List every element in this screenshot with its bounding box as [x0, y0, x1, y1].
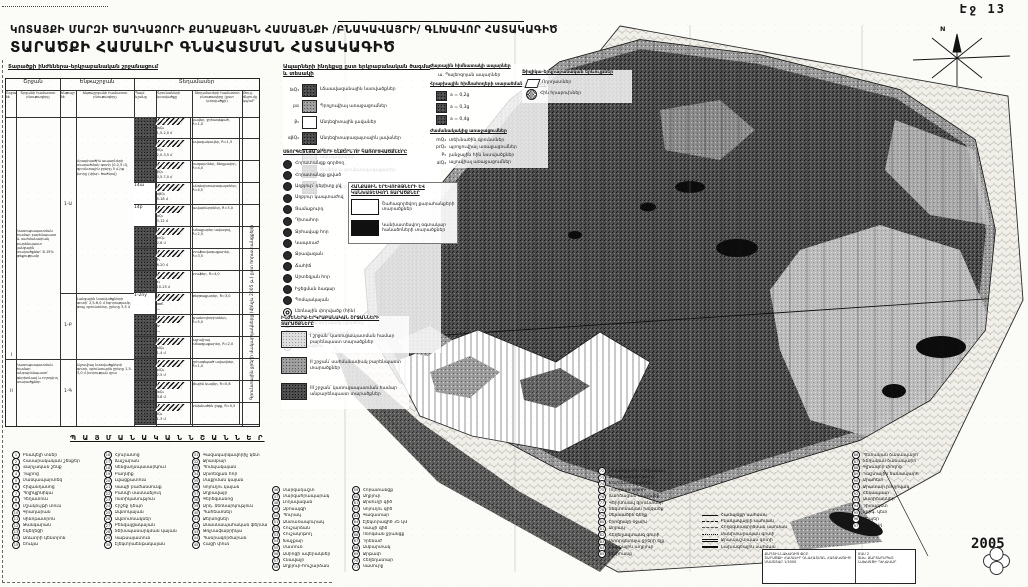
strat-index-cell: P₃ 6-20 մ [156, 249, 191, 270]
signs-col-boundaries: Համայնքի սահմանԲնակավայրի սահմանՀողօգտագ… [702, 512, 802, 550]
phys-item-2: Հին հրաբուխներ [526, 89, 632, 100]
sign-label: Գազատար [363, 513, 390, 518]
modern-title: Ժամանակակից առաջացումներ [430, 129, 548, 135]
strat-swatch-fill [134, 161, 155, 182]
modern-index: mQ₄ [432, 138, 446, 143]
strat-index-cell: tQ₄ 1-3 մ [156, 403, 191, 424]
sign-label: Մարզադաշտ [283, 488, 315, 493]
sign-label: Մաքրման կայան [203, 478, 244, 483]
strat-index: αвЄ [157, 302, 189, 306]
strat-index: tQ₄ [157, 412, 189, 416]
sign-label: Գազակարգավորիչ կետ [203, 453, 260, 458]
rock-swatch [302, 100, 317, 113]
sign-item: 58Աղբյուր-հուշարձան [272, 564, 348, 570]
strat-index: Iv [157, 324, 189, 328]
well-icon [283, 274, 292, 283]
sign-label: Տեկտոնական խզվածք [609, 507, 664, 512]
underground-item: Հորատանցք գործող [283, 160, 441, 169]
strat-swatch-fill [134, 359, 155, 380]
sign-number: 85 [598, 550, 606, 558]
boundary-line-icon [702, 546, 718, 548]
modern-item: prQ₄ պրոլյուվիալ առաջացումներ [432, 145, 548, 151]
map-title-line1: ԿՈՏԱՅՔԻ ՄԱՐԶԻ ԾԱՂԿԱՁՈՐԻ ՔԱՂԱՔԱՅԻՆ ՀԱՄԱՅՆ… [10, 24, 650, 36]
sign-label: Տրիգ. կետ [863, 510, 888, 515]
sign-label: Ճահճացած տարածք [609, 494, 660, 499]
strat-index: αQ₂ [157, 214, 189, 218]
strat-desc: թերթաքարեր, R=3,0 [191, 293, 240, 314]
strat-thickness: 0,5-7,0 մ [157, 175, 189, 179]
strat-index-cell: βQ₃ 0,5-7,0 մ [156, 161, 191, 182]
strat-swatch-fill: 1-2ny [134, 293, 155, 314]
sign-label: Կապի գիծ [363, 526, 388, 531]
region-zone-swatch [281, 357, 307, 374]
strat-desc: ալյուվիալ խճագլաքարեր, R=2,0 [191, 337, 240, 358]
modern-label: ալյուվիալ առաջացումներ [449, 160, 511, 166]
col-group-sections: Տեղամասեր [134, 79, 259, 91]
strat-swatch [134, 139, 156, 160]
sign-number: 97 [852, 522, 860, 530]
phys-label-2: Հին հրաբուխներ [540, 91, 581, 97]
strat-swatch-fill [134, 117, 155, 138]
strat-thickness: 6-20 մ [157, 263, 189, 267]
mineral-label: Շահագործվող քարահանքերի տարածքներ [382, 202, 455, 213]
strat-swatch-fill: 14ա [134, 183, 155, 204]
sign-label: Կաթսայատուն [115, 536, 151, 541]
zoning-table: Շրջան Ենթաշրջան Տեղամասեր Շրջանի № Շրջան… [5, 78, 260, 427]
sign-label: Գերխոնավ գրունտներ [609, 501, 663, 506]
well-icon [283, 217, 292, 226]
sign-label: Աղբյուր [363, 494, 381, 499]
strat-swatch [134, 359, 156, 380]
strat-index: βQ₃ [157, 170, 189, 174]
sign-label: Հենապատ [863, 491, 889, 496]
boundary-line-icon [702, 527, 718, 528]
strat-row: P₃ 6-20 մ տուֆավազաքարեր, R=3,5 [134, 249, 259, 271]
legend-rock-item: pα Պրոլյուվիալ առաջացումներ [283, 100, 435, 113]
well-icon [283, 205, 292, 214]
strat-index: τ₃ [157, 280, 189, 284]
strat-index: dQ₄ [157, 148, 189, 152]
zoning-table-title: Տարածքի ինժեներա-երկրաբանական շրջանացում [8, 64, 158, 71]
underground-item: Պոմպակայան [283, 296, 441, 305]
legend-regions-list: I շրջան՝ կառուցապատման համար բարենպաստ տ… [281, 331, 409, 400]
col-header-4: Պայմ. նշանը [135, 91, 155, 117]
strat-thickness: — [157, 307, 189, 311]
signs-col-5: 59Հորատանցք60Աղբյուր61Ջրմուղի գիծ62Կոյու… [352, 487, 444, 570]
strat-rows: laQ₄ 1,5-2,0 մ կավեր, ջրհագեցած, R=1,0 d… [134, 117, 259, 425]
underground-item: Ջրավազան [283, 251, 441, 260]
rock-index: αβQ₂ [283, 136, 299, 141]
well-icon [283, 239, 292, 248]
phys-item-1: Ողողատներ [526, 79, 632, 88]
sign-label: Պոլիկլինիկա [23, 491, 53, 496]
sign-label: Տեղական ճանապարհ [863, 459, 917, 464]
sign-label: Մատուռ [283, 545, 303, 550]
underground-label: Ցամաքուրդ [295, 207, 323, 213]
sign-label: Բնակավայրի սահման [721, 519, 775, 524]
underground-label: Լեռնային փորվածք (հին) [295, 309, 355, 315]
strat-swatch-fill [134, 227, 155, 248]
sign-label: Ողողման գոտի [609, 488, 645, 493]
strat-desc: գրանոդիորիտներ, R=5,0 [191, 315, 240, 336]
modern-index: prQ₄ [432, 145, 446, 150]
strat-desc: բազալտներ, ճեղքավոր, R=4,0 [191, 161, 240, 182]
region-zone-item: II շրջան՝ սահմանափակ բարենպաստ տարածքներ [281, 357, 409, 374]
lithology-bar [155, 294, 184, 301]
rock-swatch [302, 116, 317, 129]
strat-swatch: 14ա [134, 183, 156, 204]
well-icon [283, 296, 292, 305]
mineral-swatch [351, 199, 379, 215]
bottom-dashed-rule [2, 582, 332, 583]
sign-label: Պանրագործարան [203, 536, 247, 541]
sign-label: Էրոզիայի օջախ [609, 520, 647, 525]
modern-label: լանջային հին նստվածքներ [449, 153, 514, 159]
signs-col-8: 86Պետական ճանապարհ87Տեղական ճանապարհ88Գլ… [852, 452, 962, 529]
legend-rocks-title: Ապարների ինդեքսը ըստ երկրաբանական ծագման… [283, 64, 435, 78]
lithology-bar [155, 404, 184, 411]
sign-item: 30Էլեկտրաենթակայան [104, 541, 190, 547]
lithology-bar [155, 360, 184, 367]
strat-row: laQ₃ 3-8 մ լճային կավեր, R=0,8 [134, 381, 259, 403]
left-margin-rule [2, 60, 3, 583]
sign-label: Սողանքային տեղամաս [609, 469, 665, 474]
col-header-1: Շրջանի համառոտ բնութագիրը [17, 91, 59, 117]
boundary-line-icon [702, 534, 718, 535]
lithology-bar [155, 338, 184, 345]
legend-phys: Ֆիզիկա-երկրաբանական երևույթներ Ողողատներ… [522, 70, 632, 103]
strat-index-cell: Iv — [156, 315, 191, 336]
strat-desc: կավեր, ջրհագեցած, R=1,0 [191, 117, 240, 138]
well-icon [283, 182, 292, 191]
underground-item: Իջեցման ձագար [283, 285, 441, 294]
strat-row: prQ₄ 2-6 մ խճաքարեր ավազով, R=2,5 [134, 227, 259, 249]
sign-label: Ջրամբար [203, 459, 227, 464]
washland-icon [524, 79, 540, 88]
strat-swatch-fill [134, 249, 155, 270]
sign-label: Կոյուղու կայան [203, 485, 240, 490]
strat-thickness: — [157, 329, 189, 333]
lithology-bar [155, 206, 184, 213]
strat-index: alQ₄ [157, 346, 189, 350]
year-stamp: 2005 [971, 536, 1005, 552]
sign-label: Տեխսպասարկման կայան [115, 529, 177, 534]
sign-label: Ավտոտնակներ [115, 517, 152, 522]
sign-number: 58 [272, 563, 280, 571]
mineral-item: Կանխատեսվող օգտակար հանածոների տարածքներ [351, 220, 455, 236]
col-header-6: Տեղամասերի համառոտ բնութագիրը (ըստ կտրվա… [193, 91, 241, 117]
sign-label: Դրենաժ [363, 539, 382, 544]
sign-label: Գրադարան [23, 510, 51, 515]
sign-label: Ամբարտակ [363, 545, 391, 550]
seismic-zone-swatch [436, 115, 447, 125]
strat-row: plQ₄ 2-5 մ ջրհագեցած ավազներ, R=1,0 [134, 359, 259, 381]
underground-label: Պոմպակայան [295, 298, 329, 304]
phys-title: Ֆիզիկա-երկրաբանական երևույթներ [522, 70, 632, 76]
phys-label-1: Ողողատներ [542, 80, 571, 86]
sign-label: Առևտրի կենտրոն [23, 536, 66, 541]
title-block-right: ՄԱՍ 2ԳԼԽ. ՃԱՐՏԱՐԱՊԵՏՆԱԽԱԳԾԻ ՂԵԿԱՎԱՐ [856, 550, 915, 583]
sign-label: Հանքային աղբյուր [609, 545, 654, 550]
col-group-region: Շրջան [6, 79, 60, 91]
sign-label: Գերեզմանոց [203, 497, 234, 502]
strat-index: plQ₄ [157, 368, 189, 372]
sign-label: Շուկա [23, 542, 38, 547]
sign-label: Աղբյուր-հուշարձան [283, 564, 330, 569]
region-2-desc: Կառուցապատման համար անբարենպաստ՝ գերխոնա… [17, 363, 59, 384]
strat-desc: տուֆավազաքարեր, R=3,5 [191, 249, 240, 270]
top-dotted-rule [2, 6, 108, 7]
seismic-zone-label: a = 0,3g [450, 105, 469, 111]
underground-item: Ճահիճ [283, 262, 441, 271]
sign-item: 97Ուղեկալ [852, 522, 962, 528]
region-1-number: I [7, 117, 16, 359]
strat-row: 14ա αβQ₂ 5-18 մ անդեզիտաբազալտներ, R=4,5 [134, 183, 259, 205]
seismic-zone-swatch [436, 103, 447, 113]
sign-label: Լվացքատուն [115, 478, 147, 483]
strat-thickness: 1-3 մ [157, 417, 189, 421]
modern-list: mQ₄ տեխնածին գրունտներ prQ₄ պրոլյուվիալ … [432, 138, 548, 167]
sign-label: Ճաշարան [115, 459, 140, 464]
sign-label: Կամուրջ [363, 564, 384, 569]
seismic-zone-label: a = 0,4g [450, 117, 469, 123]
strat-desc: ավազակավեր, R=1,5 [191, 139, 240, 160]
sign-label: Հյուրանոց [115, 453, 140, 458]
strat-swatch: 1-2ny [134, 293, 156, 314]
strat-row: tQ₄ 1-3 մ տեխնածին լիցք, R=0,5 [134, 403, 259, 425]
rock-swatch [302, 84, 317, 97]
sign-label: Աստիճաններ [863, 497, 895, 502]
strat-thickness: 1-4 մ [157, 351, 189, 355]
strat-index-cell: alQ₄ 1-4 մ [156, 337, 191, 358]
col-header-7: Թույլ. ճնշումը կգ/սմ² [243, 91, 259, 117]
sign-label: Էլեկտրաենթակայան [115, 542, 166, 547]
legend-underground-title: ՍՏՈՐԳԵՏՆՅԱ ՋՐԵՐԻ ԵԼՔԵՐՆ ՈՒ ԿԱՌՈՒՑՎԱԾՔՆԵՐ… [283, 150, 441, 156]
sign-label: Ոստիկանություն [115, 497, 155, 502]
map-sheet: Էջ 13 ԿՈՏԱՅՔԻ ՄԱՐԶԻ ԾԱՂԿԱՁՈՐԻ ՔԱՂԱՔԱՅԻՆ … [0, 0, 1028, 587]
sign-label: Բաղնիք [115, 472, 134, 477]
sign-label: Թռչնաֆաբրիկա [203, 529, 243, 534]
strat-index-cell: laQ₃ 3-8 մ [156, 381, 191, 402]
sign-label: Վարչական շենք [23, 465, 62, 470]
strat-desc: լճային կավեր, R=0,8 [191, 381, 240, 402]
legend-regions: ԻՆԺԵՆԵՐԱ-ԵՐԿՐԱԲԱՆԱԿԱՆ ՇՐՋԱՆՆԵՐԻ ՏԱՐԱԾՔՆԵ… [281, 316, 409, 409]
strat-row: alQ₄ 1-4 մ ալյուվիալ խճագլաքարեր, R=2,0 [134, 337, 259, 359]
strat-desc: ջրհագեցած ավազներ, R=1,0 [191, 359, 240, 380]
strat-desc: տուֆեր, R=4,0 [191, 271, 240, 292]
sign-label: Ռեպեր [863, 517, 880, 522]
sign-label: Կենցաղսպասարկում [115, 465, 166, 470]
sign-label: Հացի փուռ [203, 542, 230, 547]
strat-desc: լավաբեկորներ, R=3,0 [191, 205, 240, 226]
title-block-line: ՆԱԽԱԳԾԻ ՂԵԿԱՎԱՐ [858, 560, 914, 564]
rock-index: laQ₄ [283, 88, 299, 93]
sign-item: 45Հացի փուռ [192, 541, 270, 547]
region-zone-label: I շրջան՝ կառուցապատման համար բարենպաստ տ… [310, 334, 409, 345]
strat-index-cell: dQ₄ 2,0-3,5 մ [156, 139, 191, 160]
col-group-subregion: Ենթաշրջան [60, 79, 134, 91]
sign-label: Քարաթափումներ [609, 481, 652, 486]
subregion-1c-number: 1-Գ [61, 359, 75, 425]
legend-regions-title: ԻՆԺԵՆԵՐԱ-ԵՐԿՐԱԲԱՆԱԿԱՆ ՇՐՋԱՆՆԵՐԻ ՏԱՐԱԾՔՆԵ… [281, 316, 409, 327]
region-zone-item: I շրջան՝ կառուցապատման համար բարենպաստ տ… [281, 331, 409, 348]
modern-item: alQ₄ ալյուվիալ առաջացումներ [432, 160, 548, 166]
strat-swatch-fill: 14բ [134, 205, 155, 226]
underground-label: Հորատանցք լքված [295, 173, 341, 179]
subregion-1a-number: 1-Ա [61, 117, 75, 293]
subregion-1c-desc: Ալյուվիալ նստվածքների գոտի, գրունտային ջ… [77, 363, 133, 376]
subregion-1b-number: 1-Բ [61, 293, 75, 359]
strat-thickness: 2-5 մ [157, 373, 189, 377]
sign-label: Հնավայր [283, 558, 305, 563]
strat-index-cell: αвЄ — [156, 293, 191, 314]
strat-row: τ₃ 10-25 մ տուֆեր, R=4,0 [134, 271, 259, 293]
well-icon [283, 251, 292, 260]
lithology-bar [155, 272, 184, 279]
sign-label: Դպրոց [23, 472, 39, 477]
underground-label: Ջրհավաք հոր [295, 230, 329, 236]
seismic-zone-item: a = 0,3g [436, 103, 548, 113]
sign-label: Բնակելի տներ [23, 453, 58, 458]
col-header-3: Ենթաշրջանի համառոտ բնութագիրը [77, 91, 133, 117]
title-block-line: ՄԱՍՇՏԱԲ 1:5000 [765, 560, 854, 564]
page-number: Էջ 13 [960, 2, 1006, 16]
bedrock-title: Ժայռային հիմնատակի ապարներ [430, 64, 548, 70]
boundary-line-icon [702, 521, 718, 522]
sign-label: Զբոսայգի [283, 507, 306, 512]
lithology-bar [155, 118, 184, 125]
sign-label: Ջրապաշտպան գոտի [721, 538, 773, 543]
sign-label: Դաշտային ճանապարհ [863, 472, 919, 477]
strat-index-cell: αQ₂ 3-12 մ [156, 205, 191, 226]
sign-label: Հուշարձան [283, 526, 310, 531]
lithology-bar [155, 184, 184, 191]
sign-label: Դիտակետ [863, 504, 888, 509]
sign-label: Խաչքար [283, 539, 303, 544]
legend-rock-item: αβQ₂ Անդեզիտաբազալտային լավաներ [283, 132, 435, 145]
sign-label: Կինոթատրոն [23, 517, 56, 522]
col-header-2: Ենթաշրջանի № [61, 91, 75, 117]
map-title-line2: ՏԱՐԱԾՔԻ ՀԱՄԱԼԻՐ ԳՆԱՀԱՏՄԱՆ ՀԱՏԱԿԱԳԻԾ [10, 38, 530, 56]
underground-label: Աղբյուր՝ դեբիտը լ/վ [295, 184, 341, 190]
subregion-1a-desc: Հրաբխածին ապարների տարածման գոտի (0-2,5 … [77, 159, 133, 176]
title-block: ՔԱՂՇԻՆՆԱԽԱԳԻԾ ՓԲԸՏԱՐԱԾՔԻ ՀԱՄԱԼԻՐ ԳՆԱՀԱՏՄ… [762, 549, 916, 584]
strat-swatch [134, 117, 156, 138]
sign-label: Թանգարան [23, 523, 52, 528]
strat-desc: անդեզիտաբազալտներ, R=4,5 [191, 183, 240, 204]
modern-item: mQ₄ տեխնածին գրունտներ [432, 138, 548, 144]
strat-swatch-fill [134, 337, 155, 358]
strat-swatch [134, 337, 156, 358]
strat-index-cell: laQ₄ 1,5-2,0 մ [156, 117, 191, 138]
sign-label: Պոմպակայան [203, 465, 237, 470]
conventional-signs-header: Պ Ա Յ Մ Ա Ն Ա Կ Ա Ն Ն Շ Ա Ն Ն Ե Ր [70, 434, 265, 442]
sign-label: Համայնքի սահման [721, 513, 767, 518]
strat-index-cell: prQ₄ 2-6 մ [156, 227, 191, 248]
sign-label: Պետական ճանապարհ [863, 453, 919, 458]
sign-label: Դեղատուն [23, 497, 49, 502]
signs-col-4: 46Մարզադաշտ47Մարզահրապարակ48Լողավազան49Զ… [272, 487, 348, 570]
strat-swatch-fill [134, 403, 155, 424]
well-icon [283, 262, 292, 271]
sign-label: Մանկապարտեզ [23, 478, 63, 483]
lithology-bar [155, 228, 184, 235]
grid-line [76, 90, 77, 426]
region-zone-label: III շրջան՝ կառուցապատման համար անբարենպա… [310, 386, 409, 397]
strat-row: Iv — գրանոդիորիտներ, R=5,0 [134, 315, 259, 337]
signs-col-3: 31Գազակարգավորիչ կետ32Ջրամբար33Պոմպակայա… [192, 452, 270, 548]
underground-label: Ջրավազան [295, 252, 323, 258]
signs-col-1: 1Բնակելի տներ2Հասարակական շենքեր3Վարչակա… [12, 452, 102, 548]
strat-swatch [134, 271, 156, 292]
underground-label: Աղբյուր կապտաժով [295, 195, 344, 201]
underground-label: Կապտաժ [295, 241, 319, 247]
modern-item: P₃ լանջային հին նստվածքներ [432, 153, 548, 159]
underground-label: Ճահիճ [295, 264, 311, 270]
strat-desc: խճաքարեր ավազով, R=2,5 [191, 227, 240, 248]
strat-swatch-fill [134, 315, 155, 336]
region-2-number: II [7, 359, 16, 425]
well-icon [283, 171, 292, 180]
sign-label: Ջրմուղի գիծ [363, 500, 393, 505]
strat-thickness: 3-8 մ [157, 395, 189, 399]
well-icon [283, 228, 292, 237]
region-1-desc: Կառուցապատման համար բարենպաստ և սահմանափ… [17, 229, 59, 258]
top-rule [338, 21, 524, 22]
sign-label: Հորատանցք [363, 488, 394, 493]
rock-label: Լճաավազանային նստվածքներ [320, 87, 396, 93]
sign-label: Ջրատար խողովակ [863, 485, 910, 490]
sign-label: Հեղեղավտանգ գոտի [609, 533, 660, 538]
signs-col-2: 16Հյուրանոց17Ճաշարան18Կենցաղսպասարկում19… [104, 452, 190, 548]
sign-label: Սանիտարական գոտի [721, 532, 775, 537]
sign-label: Եկեղեցի [23, 529, 43, 534]
lithology-bar [155, 316, 184, 323]
strat-row: laQ₄ 1,5-2,0 մ կավեր, ջրհագեցած, R=1,0 [134, 117, 259, 139]
rock-index: pα [283, 104, 299, 109]
sign-label: Հեղեղատար [363, 558, 394, 563]
sign-label: Հիվանդանոց [23, 485, 55, 490]
sign-number: 71 [352, 563, 360, 571]
strat-swatch [134, 227, 156, 248]
sign-label: Էլեկտրագիծ 35 կՎ [363, 520, 408, 525]
col-header-0: Շրջանի № [6, 91, 16, 117]
sign-label: Անտառապուրակ [283, 520, 325, 525]
north-label: N [940, 26, 945, 34]
modern-label: պրոլյուվիալ առաջացումներ [449, 145, 517, 151]
rock-label: Անդեզիտային լավաներ [320, 120, 376, 126]
sign-label: Ստորգետնյա ջրերի ելք [609, 539, 665, 544]
strat-row: dQ₄ 2,0-3,5 մ ավազակավեր, R=1,5 [134, 139, 259, 161]
sign-label: Ջերմոցներ [203, 517, 229, 522]
sign-item: 71Կամուրջ [352, 564, 444, 570]
strat-row: βQ₃ 0,5-7,0 մ բազալտներ, ճեղքավոր, R=4,0 [134, 161, 259, 183]
strat-index-cell: τ₃ 10-25 մ [156, 271, 191, 292]
sign-label: Լողավազան [283, 500, 313, 505]
modern-label: տեխնածին գրունտներ [449, 138, 504, 144]
sign-label: Հրշեջ դեպո [115, 504, 143, 509]
sign-label: Աղբավայր [203, 491, 228, 496]
sign-label: Քարհանք [609, 552, 633, 557]
region-zone-swatch [281, 331, 307, 348]
strat-thickness: 3-12 մ [157, 219, 189, 223]
sign-label: Հուշակոթող [283, 532, 312, 537]
legend-minerals: ՀԱՆՔԱՅԻՆ ԵՐԵՎՈՒՅԹՆԵՐԻ ԵՎ ԿԱՆԽԱՏԵՍՎՈՂ ՏԱՐ… [348, 182, 458, 244]
mineral-label: Կանխատեսվող օգտակար հանածոների տարածքներ [382, 223, 455, 234]
sign-label: Ջրթափ [363, 552, 381, 557]
legend-rock-item: β₃ Անդեզիտային լավաներ [283, 116, 435, 129]
region-zone-swatch [281, 383, 307, 400]
